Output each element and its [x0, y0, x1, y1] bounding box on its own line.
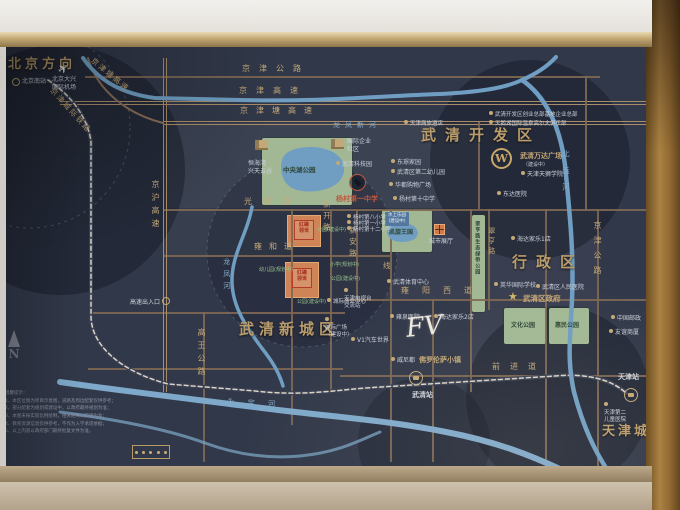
poi-dot-icon: [347, 220, 351, 224]
board-frame-right: [646, 0, 680, 510]
map-label: 天津电视台交流站: [344, 288, 372, 310]
map-label: 京津公路: [592, 221, 602, 281]
poi-dot-icon: [611, 315, 615, 319]
map-label: 京津公路: [242, 64, 310, 74]
label-yangcun-no1-middle-school: 杨村第一中学: [336, 195, 378, 204]
disclaimer-title: 温馨提示：: [5, 390, 133, 398]
legend-tick: [164, 451, 167, 454]
map-label: 北京南站: [22, 78, 46, 86]
map-label: 中央湖公园: [283, 166, 316, 174]
showroom-map-photo: 红磡领世红磡领世水上乐园(建设中)北京方向武清开发区行政区武清新城区天津城区京津…: [0, 0, 680, 510]
poi-dot-icon: [391, 169, 395, 173]
legend-tick: [142, 451, 145, 454]
highway-exit-icon: [162, 297, 170, 305]
region-wuqing-dev-zone: 武清开发区: [421, 126, 541, 145]
map-label: 京津塘高速: [240, 106, 320, 116]
map-label: （建设中）: [523, 162, 548, 168]
north-arrow-icon: [8, 330, 20, 347]
map-label: 武清区第二幼儿园: [391, 169, 445, 177]
map-label: 东达医院: [497, 191, 527, 199]
region-wuqing-new-town: 武清新城区: [239, 320, 339, 339]
wuqing-rail-station-icon: [409, 371, 423, 385]
legend-tick: [149, 451, 152, 454]
enterprise-community-building-icon: [331, 139, 344, 149]
map-label: 龙凤新河: [333, 121, 381, 130]
disclaimer-text: 温馨提示： 1、本区位图为项目示意图，道路及周边配套仅供参考；2、部分配套为规划…: [5, 390, 133, 436]
legend-tick: [157, 451, 160, 454]
tianjin-rail-station-icon: [624, 388, 638, 402]
map-label: 线: [383, 261, 391, 270]
poi-dot-icon: [336, 161, 340, 165]
poi-dot-icon: [389, 182, 393, 186]
map-label: 天津商旅酒店: [404, 120, 443, 128]
map-label: 公园(建设中): [297, 299, 326, 305]
map-label: 海达家乐1店: [511, 236, 551, 244]
map-label: 武清科技园: [336, 161, 372, 169]
map-label: 雍阳西道: [401, 286, 485, 296]
disclaimer-line: 4、教育资源信息仅供参考，不作为入学承诺依据；: [5, 421, 133, 429]
map-label: 武清区人民医院: [536, 284, 584, 292]
wall-left-edge: [0, 33, 6, 466]
disclaimer-lines: 1、本区位图为项目示意图，道路及周边配套仅供参考；2、部分配套为规划或建设中，以…: [5, 398, 133, 436]
tianyungu-building-icon: [255, 140, 268, 150]
map-label: 文化公园: [511, 322, 535, 330]
poi-dot-icon: [325, 317, 329, 321]
map-label: 高速出入口: [130, 299, 160, 307]
poi-dot-icon: [511, 236, 515, 240]
map-label: 天鹅湖国际温泉高尔夫俱乐部: [489, 120, 567, 128]
map-label: 华都购物广场: [389, 182, 431, 190]
map-label: 小学(规划中): [330, 262, 359, 268]
disclaimer-line: 1、本区位图为项目示意图，道路及周边配套仅供参考；: [5, 398, 133, 406]
map-label: 龙凤河: [222, 258, 231, 294]
compass-north: N: [5, 330, 23, 361]
map-label: 国际企业社区: [347, 138, 371, 153]
poi-dot-icon: [497, 191, 501, 195]
map-label: 城市展厅: [429, 238, 453, 246]
map-label: 武清开发区创业总部基地企业总部: [489, 111, 578, 119]
label-florentia-village: 佛罗伦萨小镇: [419, 356, 461, 365]
school-graduation-cap-icon: [349, 174, 366, 191]
map-label: 惠民公园: [555, 322, 579, 330]
map-label: 杨村第十二小学: [347, 226, 392, 234]
map-label: 武清体育中心: [387, 279, 429, 287]
poi-dot-icon: [391, 159, 395, 163]
disclaimer-line: 5、以上内容以政府部门最终批复文件为准。: [5, 428, 133, 436]
project-logo: 红磡领世: [292, 268, 312, 288]
government-star-icon: ★: [508, 290, 518, 303]
map-label: 翠亨路: [487, 227, 496, 257]
legend-tick: [135, 451, 138, 454]
map-label: 北京大兴国际机场: [52, 76, 76, 91]
poi-dot-icon: [347, 226, 351, 230]
poi-dot-icon: [521, 171, 525, 175]
label-wuqing-station: 武清站: [412, 391, 433, 400]
poi-dot-icon: [393, 196, 397, 200]
beijing-south-station-icon: [12, 78, 20, 86]
north-label: N: [5, 347, 23, 361]
map-label: 雍和道: [254, 242, 299, 252]
map-label: 公园(建设中): [331, 276, 360, 282]
region-admin-district: 行政区: [512, 253, 584, 272]
legend-box: [132, 445, 170, 459]
wanda-logo-icon: W: [491, 148, 512, 169]
map-label: 杨村第十中学: [393, 196, 435, 204]
map-label: 中国邮政: [611, 315, 641, 323]
floor-reflection: [0, 482, 652, 510]
park-info-tag: 水上乐园(建设中): [385, 212, 409, 226]
map-label: 英华国际学校: [494, 282, 536, 290]
map-label: 光明道: [244, 197, 301, 207]
poi-dot-icon: [387, 279, 391, 283]
poi-dot-icon: [404, 120, 408, 124]
poi-dot-icon: [390, 314, 394, 318]
disclaimer-line: 3、本图未按实际比例绘制，相关距离以实测为准；: [5, 413, 133, 421]
poi-dot-icon: [536, 284, 540, 288]
map-label: 凯旋王国: [389, 229, 413, 237]
poi-dot-icon: [347, 214, 351, 218]
poi-dot-icon: [609, 329, 613, 333]
wall-above-board: [0, 0, 652, 33]
map-label: 威尼都: [391, 357, 415, 365]
map-label: 天津天狮学院: [521, 171, 563, 179]
poi-dot-icon: [344, 288, 348, 292]
map-label: 公园(建设中): [317, 227, 346, 233]
map-label: 友谊商厦: [609, 329, 639, 337]
map-label: 恒海湾兴天云谷: [248, 160, 272, 175]
poi-dot-icon: [489, 111, 493, 115]
map-label: 天津第二儿童医院: [604, 402, 626, 424]
map-label: 高王公路: [196, 328, 206, 380]
city-exhibition-hall-icon: [434, 224, 445, 235]
project-logo: 红磡领世: [294, 220, 314, 240]
map-label: 前进道: [492, 362, 546, 372]
map-label: 幼儿园(规划中): [259, 267, 293, 273]
poi-dot-icon: [327, 298, 331, 302]
disclaimer-line: 2、部分配套为规划或建设中，以政府最终规划为准；: [5, 405, 133, 413]
map-label: 翠亨路生态绿带公园: [474, 221, 480, 275]
poi-dot-icon: [494, 282, 498, 286]
map-label: 京沪高速: [150, 180, 160, 232]
poi-dot-icon: [391, 357, 395, 361]
map-label: 京津高速: [239, 86, 307, 96]
board-frame-bottom: [0, 466, 652, 483]
label-tianjin-station: 天津站: [618, 373, 639, 382]
board-frame-top: [0, 32, 652, 47]
label-wuqing-government: 武清区政府: [523, 294, 561, 303]
poi-dot-icon: [604, 402, 608, 406]
map-label: V1汽车世界: [351, 337, 389, 345]
poi-dot-icon: [489, 120, 493, 124]
label-wanda-plaza: 武清万达广场: [520, 152, 562, 161]
map-label: 城际广场（建设中）: [325, 317, 353, 339]
map-label: 东璟家园: [391, 159, 421, 167]
florentia-village-fv-logo: FV: [405, 310, 445, 344]
